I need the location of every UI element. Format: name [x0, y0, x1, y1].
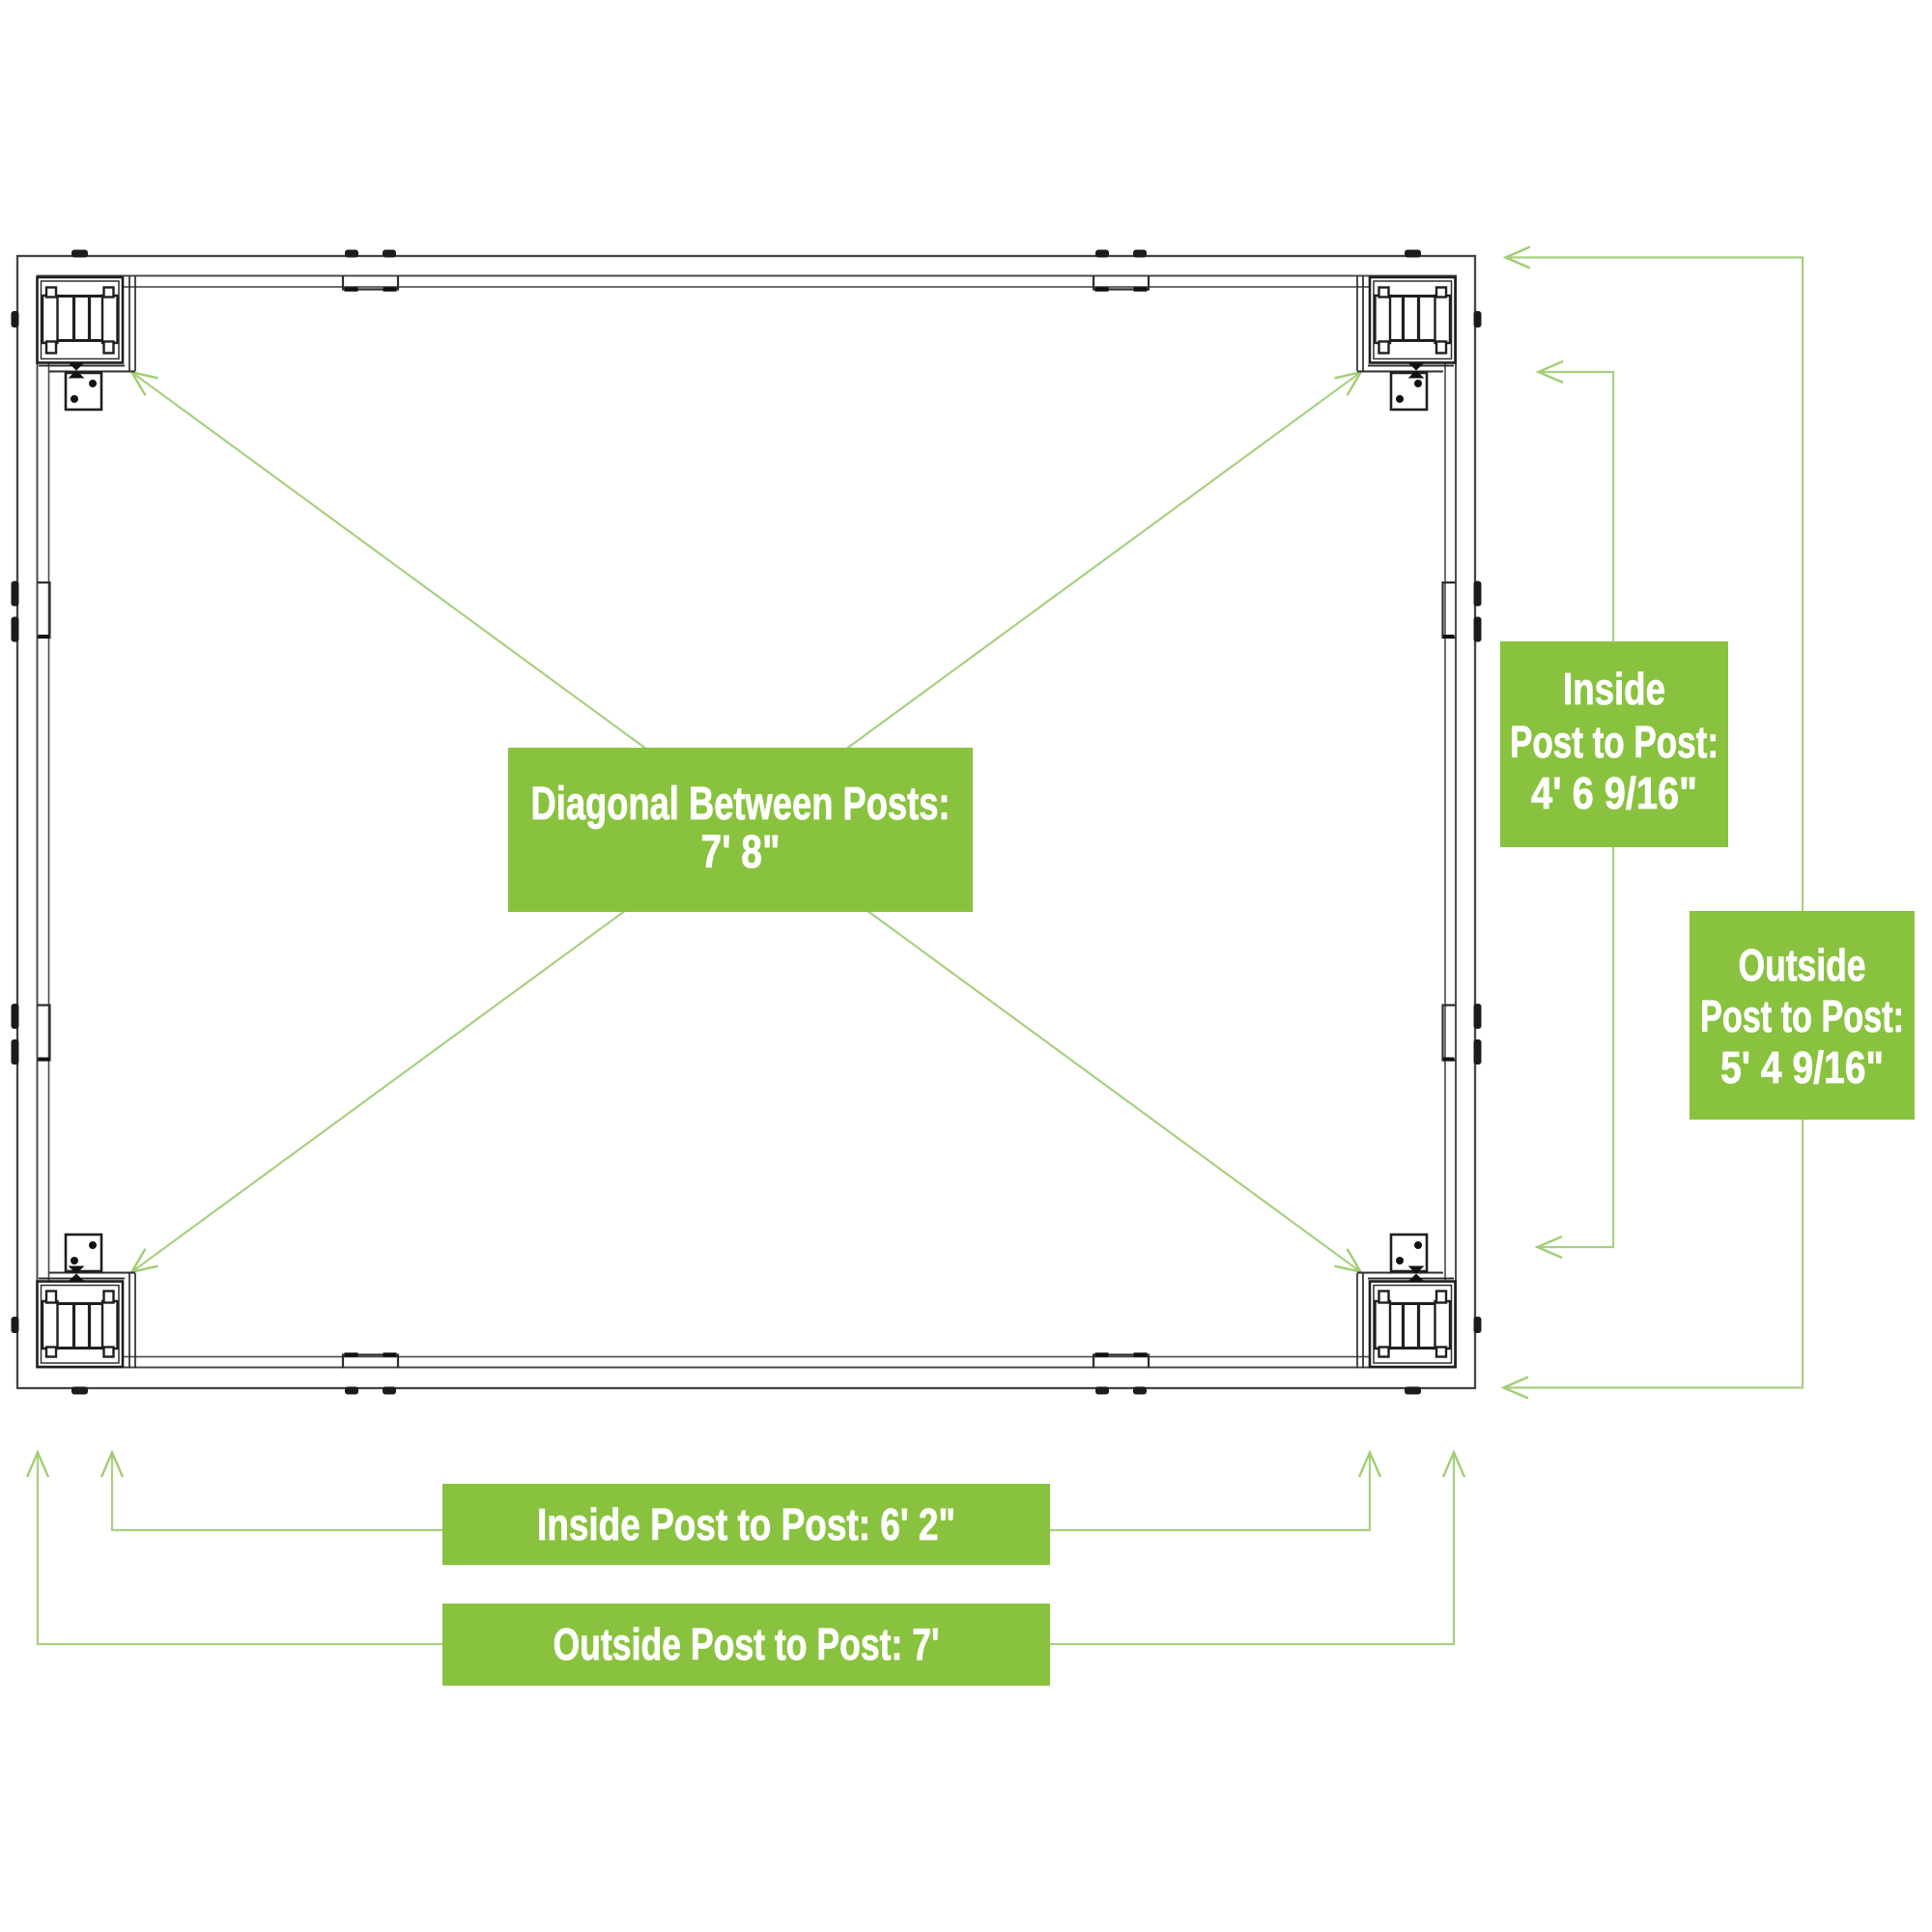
svg-text:Outside Post to Post: 7': Outside Post to Post: 7'	[554, 1619, 940, 1669]
svg-text:Outside: Outside	[1739, 940, 1866, 990]
svg-text:Inside: Inside	[1563, 664, 1665, 714]
svg-text:5' 4 9/16": 5' 4 9/16"	[1720, 1042, 1884, 1093]
svg-text:Diagonal Between Posts:: Diagonal Between Posts:	[531, 779, 951, 830]
svg-text:7' 8": 7' 8"	[701, 827, 781, 878]
svg-text:Post to Post:: Post to Post:	[1510, 717, 1719, 767]
svg-text:Inside Post to Post: 6' 2": Inside Post to Post: 6' 2"	[537, 1499, 955, 1549]
svg-text:Post to Post:: Post to Post:	[1700, 991, 1904, 1041]
svg-text:4' 6 9/16": 4' 6 9/16"	[1531, 768, 1697, 818]
